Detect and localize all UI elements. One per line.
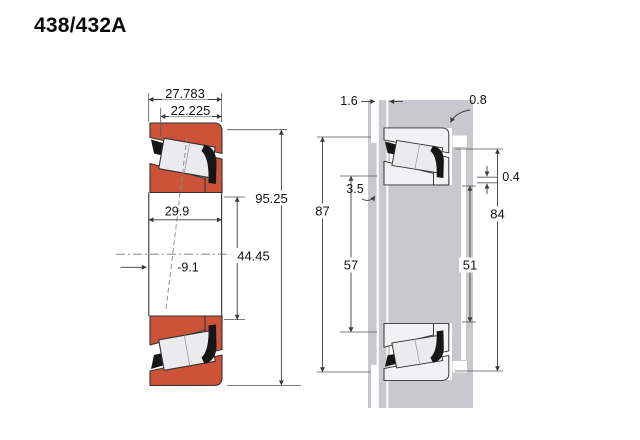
dim-axial-standout: 0.4 (502, 170, 519, 184)
dim-cage-width: 29.9 (165, 205, 189, 219)
dim-cone-width: 22.225 (171, 103, 211, 118)
dim-total-width: 27.783 (165, 86, 205, 101)
technical-drawing: 27.783 22.225 95.25 44.45 29.9 -9.1 1.6 (0, 0, 640, 440)
dim-shaft-abutment-diameter: 51 (463, 258, 477, 273)
dim-bore-diameter: 44.45 (237, 249, 270, 264)
dim-load-center: -9.1 (177, 261, 199, 275)
dim-housing-shoulder-diameter: 84 (490, 207, 504, 222)
dim-shaft-shoulder-diameter: 57 (344, 258, 358, 273)
dim-shoulder-clearance: 1.6 (340, 94, 357, 108)
dim-shaft-fillet: 3.5 (346, 182, 363, 196)
dim-outer-diameter: 95.25 (255, 191, 288, 206)
dim-housing-fillet: 0.8 (469, 93, 486, 107)
dim-housing-abutment-outer: 87 (315, 204, 329, 219)
bearing-drawing-page: 438/432A (0, 0, 640, 440)
